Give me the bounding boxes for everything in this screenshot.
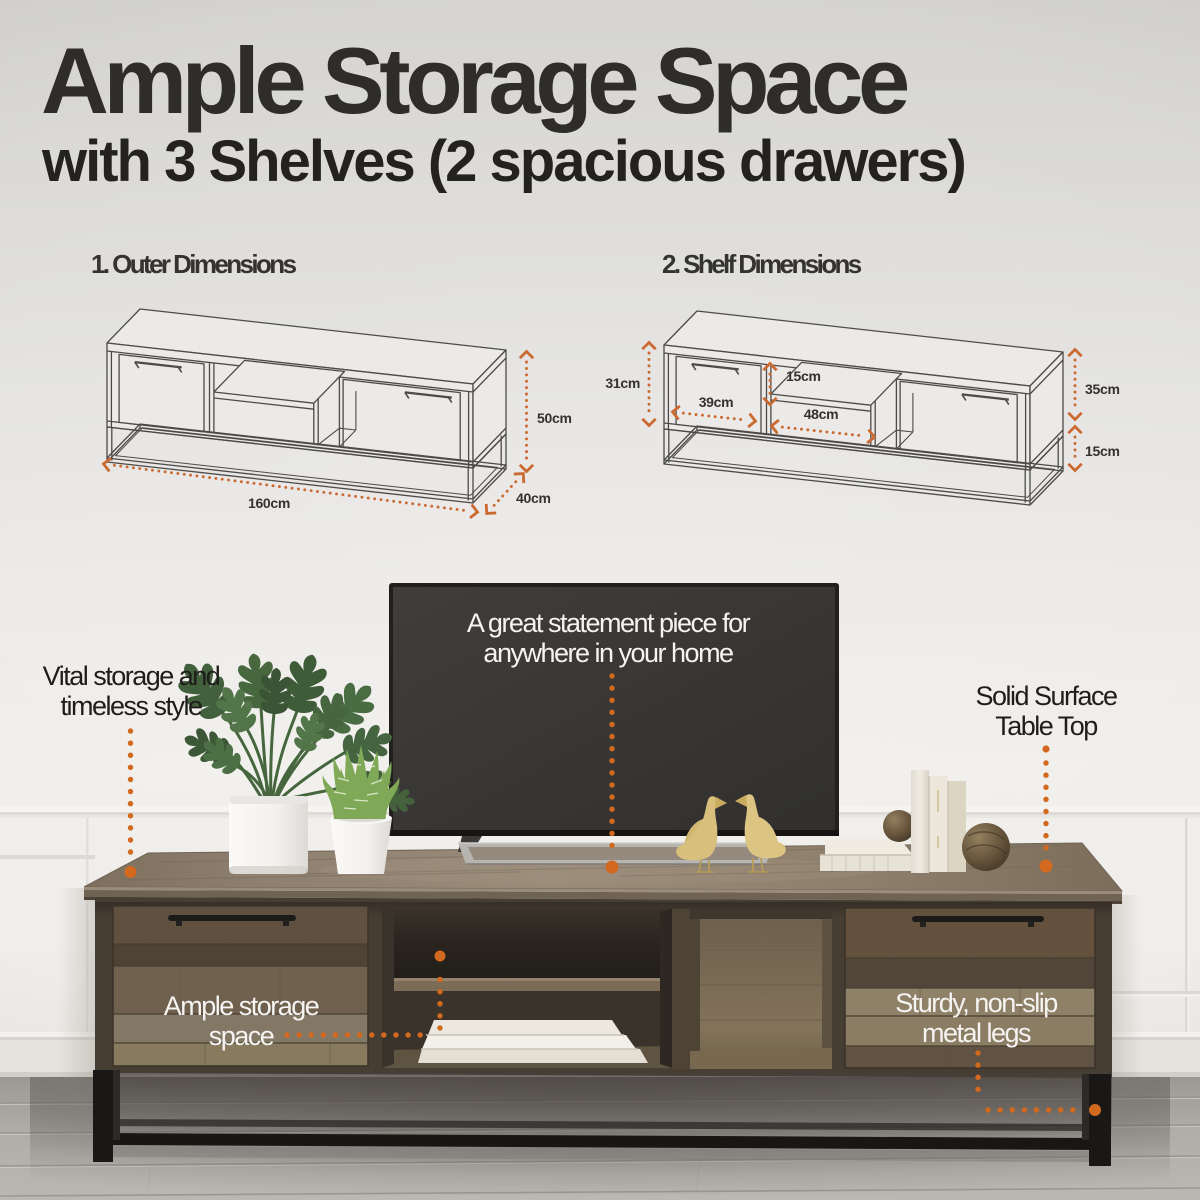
svg-text:50cm: 50cm	[537, 410, 572, 426]
svg-text:35cm: 35cm	[1085, 381, 1120, 397]
svg-text:160cm: 160cm	[248, 495, 290, 511]
svg-text:15cm: 15cm	[786, 368, 821, 384]
svg-text:15cm: 15cm	[1085, 443, 1120, 459]
svg-text:39cm: 39cm	[699, 394, 734, 410]
svg-text:48cm: 48cm	[804, 406, 839, 422]
svg-text:31cm: 31cm	[605, 375, 640, 391]
svg-text:40cm: 40cm	[516, 490, 551, 506]
